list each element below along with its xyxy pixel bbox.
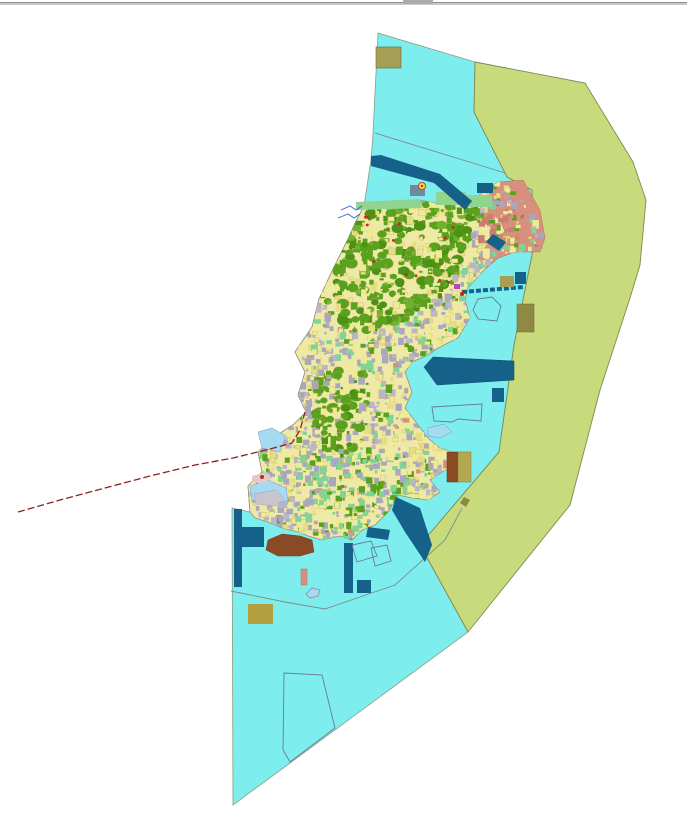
khaki-rect-east[interactable]	[517, 304, 534, 332]
khaki-square-southwest[interactable]	[248, 604, 273, 624]
navy-harbor-horiz-sw[interactable]	[242, 527, 264, 547]
navy-square-ne[interactable]	[477, 183, 493, 193]
red-marker-pier	[460, 292, 464, 296]
stream-northwest-b	[338, 214, 360, 218]
navy-harbor-vert-sw[interactable]	[234, 509, 242, 587]
khaki-square-east[interactable]	[500, 276, 514, 287]
top-divider-strip	[0, 2, 687, 3]
compound-khaki[interactable]	[458, 452, 471, 482]
map-viewport	[0, 0, 687, 821]
buoy-marker-dot	[421, 185, 423, 187]
navy-harbor-block-east[interactable]	[424, 357, 514, 385]
top-divider-strip	[403, 0, 433, 4]
compound-brown[interactable]	[447, 452, 458, 482]
navy-square-south[interactable]	[357, 580, 371, 593]
navy-square-mid-east[interactable]	[515, 272, 526, 284]
salmon-sliver-south	[301, 569, 307, 585]
map-canvas[interactable]	[0, 0, 687, 821]
navy-bar-south[interactable]	[344, 543, 353, 593]
navy-square-east[interactable]	[492, 388, 504, 402]
khaki-block-north[interactable]	[376, 47, 401, 68]
magenta-marker	[454, 284, 460, 289]
top-divider-strip	[0, 3, 687, 5]
red-dot-coast	[260, 475, 264, 479]
